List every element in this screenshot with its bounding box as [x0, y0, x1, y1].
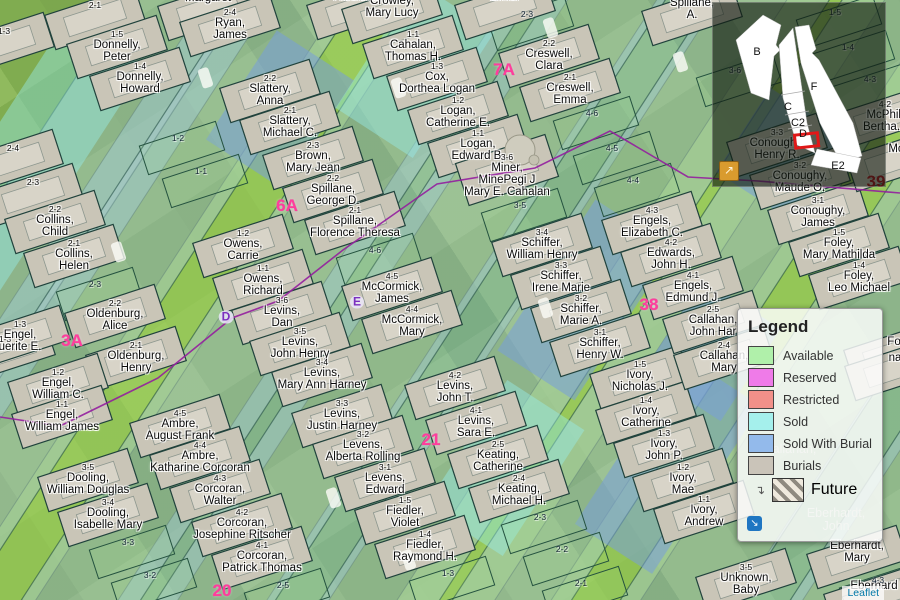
legend-panel: Legend AvailableReservedRestrictedSoldSo…: [737, 308, 883, 542]
legend-row: Burials: [748, 456, 882, 475]
legend-row: Restricted: [748, 390, 882, 409]
legend-color-swatch: [748, 390, 774, 409]
minimap-section-label: F: [811, 81, 818, 93]
corner-arrow-icon: ↴: [748, 483, 772, 497]
legend-collapse-icon[interactable]: ↘: [747, 516, 762, 531]
minimap-section-label: E2: [831, 160, 844, 172]
legend-item-label: Reserved: [783, 371, 837, 385]
legend-color-swatch: [748, 346, 774, 365]
legend-row: Reserved: [748, 368, 882, 387]
legend-item-label: Restricted: [783, 393, 839, 407]
legend-item-label: Sold: [783, 415, 808, 429]
cemetery-map[interactable]: 1-32-12-42-31-3Margaret2-4Ryan,James1-5D…: [0, 0, 900, 600]
legend-color-swatch: [748, 368, 774, 387]
legend-color-swatch: [748, 412, 774, 431]
map-attribution: Leaflet: [842, 586, 884, 600]
minimap-graphics: [713, 3, 887, 188]
leaflet-link[interactable]: Leaflet: [847, 587, 879, 599]
minimap-section-label: C: [784, 101, 792, 113]
future-hatch-swatch: [772, 478, 804, 502]
legend-row: Available: [748, 346, 882, 365]
legend-color-swatch: [748, 434, 774, 453]
legend-future-label: Future: [811, 481, 857, 499]
overview-minimap[interactable]: BFCC2DE2 ↗: [712, 2, 886, 187]
legend-row: Sold: [748, 412, 882, 431]
tree-canopy-small: [529, 155, 539, 165]
legend-title: Legend: [748, 317, 882, 337]
legend-item-label: Sold With Burial: [783, 437, 872, 451]
legend-row: Sold With Burial: [748, 434, 882, 453]
legend-row-future: ↴ Future: [748, 478, 882, 502]
legend-items: AvailableReservedRestrictedSoldSold With…: [748, 346, 882, 475]
minimap-section-label: B: [753, 46, 760, 58]
legend-item-label: Burials: [783, 459, 821, 473]
legend-color-swatch: [748, 456, 774, 475]
minimap-toggle-icon[interactable]: ↗: [719, 161, 739, 181]
minimap-section-label: D: [799, 128, 807, 140]
legend-item-label: Available: [783, 349, 834, 363]
